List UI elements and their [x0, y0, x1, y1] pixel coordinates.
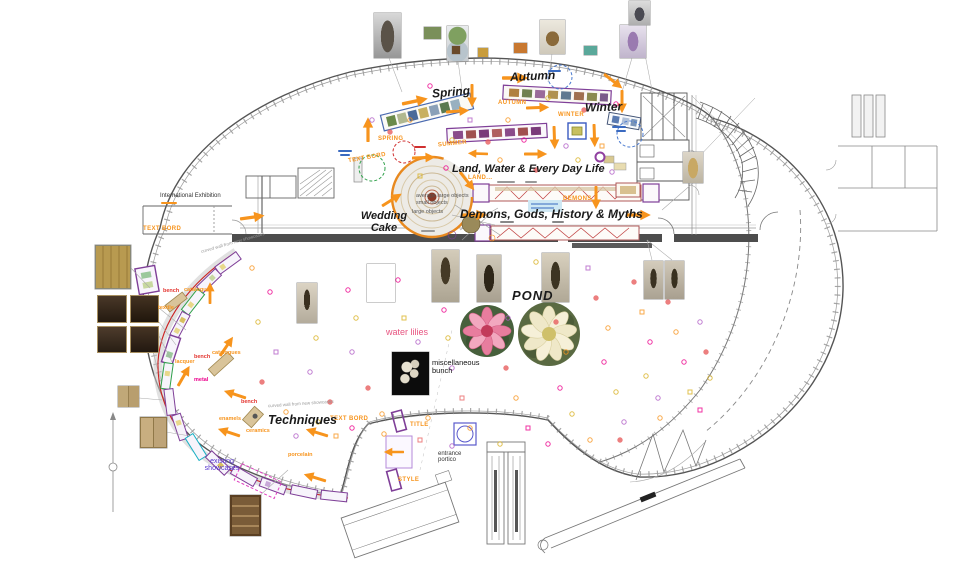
curved-stair	[692, 96, 758, 206]
autumn-zone-tag: AUTUMN	[498, 100, 526, 106]
misc-bunch-label: miscellaneous bunch	[432, 359, 488, 375]
demons-zone-tag: DEMONS	[563, 196, 592, 202]
ceramics-tag: ceramics	[246, 429, 270, 435]
statue-tall-photo	[432, 250, 459, 302]
techniques-heading: Techniques	[268, 414, 337, 427]
top-urn-photo	[629, 1, 650, 25]
gold-thumb	[478, 48, 488, 57]
statue-right-photo	[644, 261, 663, 299]
winter-zone-tag: WINTER	[558, 112, 584, 118]
teal-thumb	[584, 46, 597, 55]
diagonal-ramp	[538, 459, 745, 553]
stair-block-top-left	[246, 168, 334, 198]
illegible-note-mark	[612, 126, 626, 128]
dark-panel	[97, 326, 127, 354]
land-water-heading: Land, Water & Every Day Life	[452, 164, 605, 176]
tan-double-door-photo	[140, 417, 167, 448]
international-exhibition-label: International Exhibition	[160, 193, 221, 199]
title-tag: TITLE	[410, 422, 429, 428]
porcelain-tag: porcelain	[288, 453, 312, 459]
objects-small-note: small objects	[416, 201, 448, 207]
gold-panel-photo	[95, 245, 131, 289]
objects-avg-note: average large objects	[416, 194, 469, 200]
entrance-portico-label: entrance portico	[438, 451, 476, 464]
lacquer-tag: lacquer	[175, 360, 195, 366]
textile-tag: textile	[158, 306, 174, 312]
ornate-vase-photo	[620, 25, 646, 58]
censer-photo	[683, 152, 703, 183]
objects-large-note: large objects	[412, 210, 443, 216]
dark-thumb	[452, 46, 460, 54]
catalogues-tag: catalogues	[212, 351, 241, 357]
stone-figure-photo	[374, 13, 401, 58]
angled-hall	[338, 471, 466, 558]
tan-door-small-photo	[118, 386, 139, 407]
demons-heading: Demons, Gods, History & Myths	[460, 208, 643, 221]
illegible-note-mark	[414, 146, 426, 148]
existing-showcases-label: existing showcases	[196, 458, 248, 473]
flower-vase-photo	[447, 26, 468, 61]
text-bord-label: TEXT BORD	[143, 226, 181, 232]
illegible-note-mark	[500, 221, 514, 223]
style-tag: STYLE	[398, 477, 419, 483]
catalogues-tag: catalogues	[184, 288, 213, 294]
land-zone-tag: LAND...	[468, 175, 492, 181]
misc-bunch-photo	[392, 352, 429, 395]
dimension-marker	[109, 412, 117, 512]
cabinet-photo	[230, 495, 261, 536]
illegible-note-mark	[525, 181, 537, 183]
bench-tag: bench	[194, 355, 210, 361]
illegible-note-mark	[421, 230, 435, 232]
statue-dark-photo	[477, 255, 501, 302]
bench-tag: bench	[241, 400, 257, 406]
dark-panel	[130, 295, 160, 323]
illegible-note-mark	[161, 202, 177, 204]
statue-right-photo	[665, 261, 684, 299]
escalators	[487, 442, 525, 544]
showcase-symbol-square	[454, 423, 476, 445]
bench-tag: bench	[163, 289, 179, 295]
illegible-note-mark	[548, 70, 561, 72]
white-water-lily	[518, 302, 580, 366]
illegible-note-mark	[340, 154, 350, 156]
illegible-note-mark	[552, 221, 564, 223]
illegible-note-mark	[616, 130, 626, 132]
statue-pair-photo	[367, 264, 395, 302]
illegible-note-mark	[338, 150, 352, 152]
right-annex	[826, 95, 937, 231]
statue-photo	[297, 283, 317, 323]
water-lilies-label: water lilies	[386, 328, 428, 337]
landscape-thumb	[424, 27, 441, 39]
winter-heading: Winter	[585, 100, 623, 114]
dark-panels-photo	[97, 295, 159, 353]
enamels-tag: enamels	[219, 417, 241, 423]
spring-zone-tag: SPRING	[378, 136, 403, 142]
wedding-cake-heading: Wedding Cake	[358, 211, 410, 234]
dark-panel	[97, 295, 127, 323]
pond-heading: POND	[512, 289, 554, 303]
dark-panel	[130, 326, 160, 354]
duck-photo	[540, 20, 565, 54]
metal-tag: metal	[194, 378, 208, 384]
illegible-note-mark	[497, 181, 515, 183]
pink-water-lily	[460, 305, 514, 357]
orange-thumb	[514, 43, 527, 53]
exhibition-floor-plan: International Exhibition TEXT BORD TEXT …	[0, 0, 969, 570]
